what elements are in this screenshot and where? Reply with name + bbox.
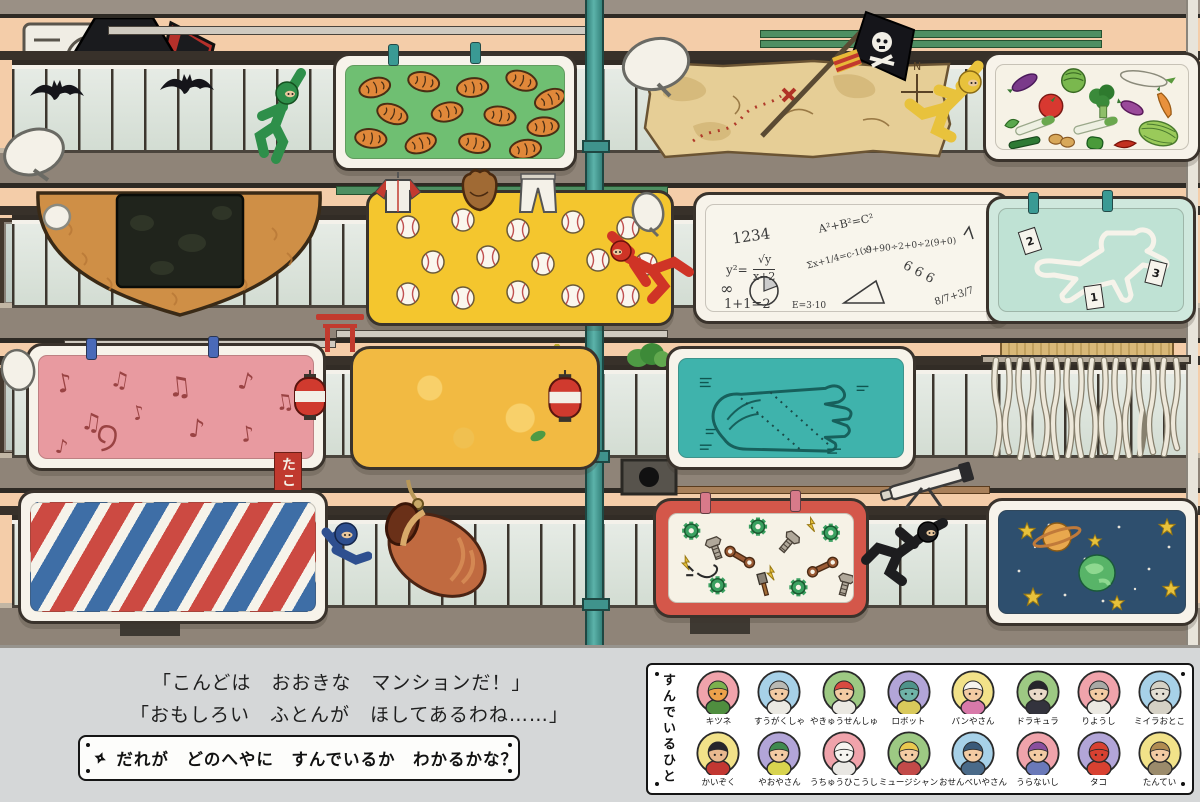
legend-name-octopus: タコ (1090, 776, 1107, 788)
legend-item-mathematician: すうがくしゃ (749, 668, 810, 729)
question-text: だれが どのへやに すんでいるか わかるかな？ (116, 746, 518, 770)
legend-name-barber: りようし (1081, 715, 1115, 727)
apartment-building-illustration: N (0, 0, 1200, 645)
clothespin (208, 336, 219, 358)
question-box: だれが どのへやに すんでいるか わかるかな？ (78, 735, 520, 781)
legend-item-musician: ミュージシャン (878, 729, 939, 790)
baseball-pants (516, 172, 560, 216)
math-formula: ∞ (720, 279, 733, 298)
drainpipe-joint (582, 140, 610, 153)
legend-name-greengrocer: やおやさん (758, 776, 801, 788)
futon-bread-bakery (333, 53, 577, 171)
math-formula: 1+1=2 (724, 297, 771, 312)
futon-tools-robot (653, 498, 869, 618)
legend-title: すんでいるひと (658, 665, 677, 793)
clothespin (86, 338, 97, 360)
laundry-pole (108, 26, 590, 35)
dracula-avatar-icon (1016, 670, 1060, 714)
svg-text:♫: ♫ (166, 371, 194, 404)
legend-name-robot: ロボット (891, 715, 925, 727)
legend-item-fortune-teller: うらないし (1007, 729, 1068, 790)
pirate-avatar-icon (696, 731, 740, 775)
math-formula: x+2 (753, 269, 775, 283)
mathematician-avatar-icon (757, 670, 801, 714)
baseball-jersey (372, 170, 424, 214)
math-formula: E=3·10 (792, 301, 826, 311)
legend-name-pirate: かいぞく (701, 776, 735, 788)
svg-text:♪: ♪ (187, 414, 206, 446)
evidence-marker: 1 (1083, 284, 1104, 310)
legend-item-pirate: かいぞく (688, 729, 749, 790)
legend-item-astronaut: うちゅうひこうし (810, 729, 878, 790)
legend-name-astronaut: うちゅうひこうし (810, 776, 878, 788)
fortune-teller-avatar-icon (1016, 731, 1060, 775)
clothespin (1102, 190, 1113, 212)
drainpipe-joint (582, 598, 610, 611)
futon-crime-scene-outline: 2 3 1 (986, 196, 1196, 324)
svg-text:♪: ♪ (54, 434, 70, 458)
clothespin (388, 44, 399, 66)
greengrocer-avatar-icon (757, 731, 801, 775)
paper-lantern (546, 370, 584, 424)
octopus-avatar-icon (1077, 731, 1121, 775)
caption-line-1: 「こんどは おおきな マンションだ！」 (152, 668, 531, 695)
caption-area: 「こんどは おおきな マンションだ！」 「おもしろい ふとんが ほしてあるわね…… (0, 645, 1200, 802)
musician-avatar-icon (887, 731, 931, 775)
legend-item-octopus: タコ (1068, 729, 1129, 790)
bush (626, 340, 670, 368)
octopus-trap-pot (352, 478, 516, 608)
legend-name-baseball-player: やきゅうせんしゅ (810, 715, 878, 727)
drain-cover (690, 618, 750, 634)
paper-lantern (292, 370, 328, 422)
mummy-avatar-icon (1138, 670, 1182, 714)
robot-avatar-icon (887, 670, 931, 714)
svg-text:♪: ♪ (54, 367, 76, 400)
clothespin (470, 42, 481, 64)
satellite-dish (618, 34, 700, 98)
shuriken-icon (94, 746, 106, 770)
satellite-dish (0, 348, 40, 394)
baseball-glove (456, 166, 500, 214)
bat-icon (26, 76, 88, 108)
fox-avatar-icon (696, 670, 740, 714)
svg-text:♪: ♪ (239, 422, 256, 449)
legend-name-mummy: ミイラおとこ (1134, 715, 1185, 727)
baker-avatar-icon (951, 670, 995, 714)
legend-grid: キツネすうがくしゃやきゅうせんしゅロボットパンやさんドラキュラりようしミイラおと… (688, 668, 1190, 790)
clothespin (1028, 192, 1039, 214)
svg-text:♪: ♪ (129, 400, 147, 425)
legend-item-mummy: ミイラおとこ (1129, 668, 1190, 729)
detective-avatar-icon (1138, 731, 1182, 775)
rice-cracker-seller-avatar-icon (951, 731, 995, 775)
laundry-pole (336, 330, 668, 338)
clothespin (790, 490, 801, 512)
legend-name-rice-cracker-seller: おせんべいやさん (939, 776, 1007, 788)
futon-barber-stripes (18, 490, 328, 624)
math-formula: y²= (726, 263, 748, 277)
legend-item-greengrocer: やおやさん (749, 729, 810, 790)
drain-cover (120, 622, 180, 636)
legend-item-baker: パンやさん (939, 668, 1007, 729)
legend-name-fortune-teller: うらないし (1016, 776, 1059, 788)
legend-item-detective: たんてい (1129, 729, 1190, 790)
legend-item-dracula: ドラキュラ (1007, 668, 1068, 729)
black-ninja-character (858, 510, 952, 588)
legend-item-rice-cracker-seller: おせんべいやさん (939, 729, 1007, 790)
astronaut-avatar-icon (822, 731, 866, 775)
telescope (880, 458, 988, 510)
svg-text:♪: ♪ (235, 366, 256, 397)
legend-name-mathematician: すうがくしゃ (754, 715, 805, 727)
picture-book-spread: N (0, 0, 1200, 802)
futon-palmistry-hand (666, 346, 916, 470)
green-ninja-character (248, 68, 308, 166)
blue-ninja-character (316, 516, 372, 576)
red-suit-character (600, 226, 698, 306)
baseball-player-avatar-icon (822, 670, 866, 714)
caption-line-2: 「おもしろい ふとんが ほしてあるわね……」 (130, 700, 569, 727)
legend-name-musician: ミュージシャン (879, 776, 938, 788)
character-legend: すんでいるひと キツネすうがくしゃやきゅうせんしゅロボットパンやさんドラキュラり… (646, 663, 1194, 795)
legend-item-fox: キツネ (688, 668, 749, 729)
legend-item-robot: ロボット (878, 668, 939, 729)
barber-avatar-icon (1077, 670, 1121, 714)
futon-vegetables-greengrocer (983, 52, 1200, 162)
bat-icon (156, 70, 218, 102)
legend-name-baker: パンやさん (952, 715, 995, 727)
legend-item-baseball-player: やきゅうせんしゅ (810, 668, 878, 729)
clothespin (700, 492, 711, 514)
legend-name-fox: キツネ (706, 715, 732, 727)
plate (40, 202, 74, 232)
pirate-flag (748, 4, 916, 146)
math-formula: √y (758, 253, 771, 266)
yellow-suit-character (893, 52, 995, 146)
legend-name-dracula: ドラキュラ (1016, 715, 1059, 727)
futon-math-formulas: 1234 A²+B²=C² y²= √y x+2 1+1=2 ∞ 9+90÷2+… (693, 192, 1011, 324)
satellite-dish (0, 126, 74, 182)
futon-space-astronaut (986, 498, 1198, 626)
svg-text:♫: ♫ (108, 367, 131, 395)
futon-hanging-noodles (980, 348, 1192, 474)
falling-leaf (528, 428, 548, 444)
legend-item-barber: りようし (1068, 668, 1129, 729)
legend-name-detective: たんてい (1143, 776, 1177, 788)
